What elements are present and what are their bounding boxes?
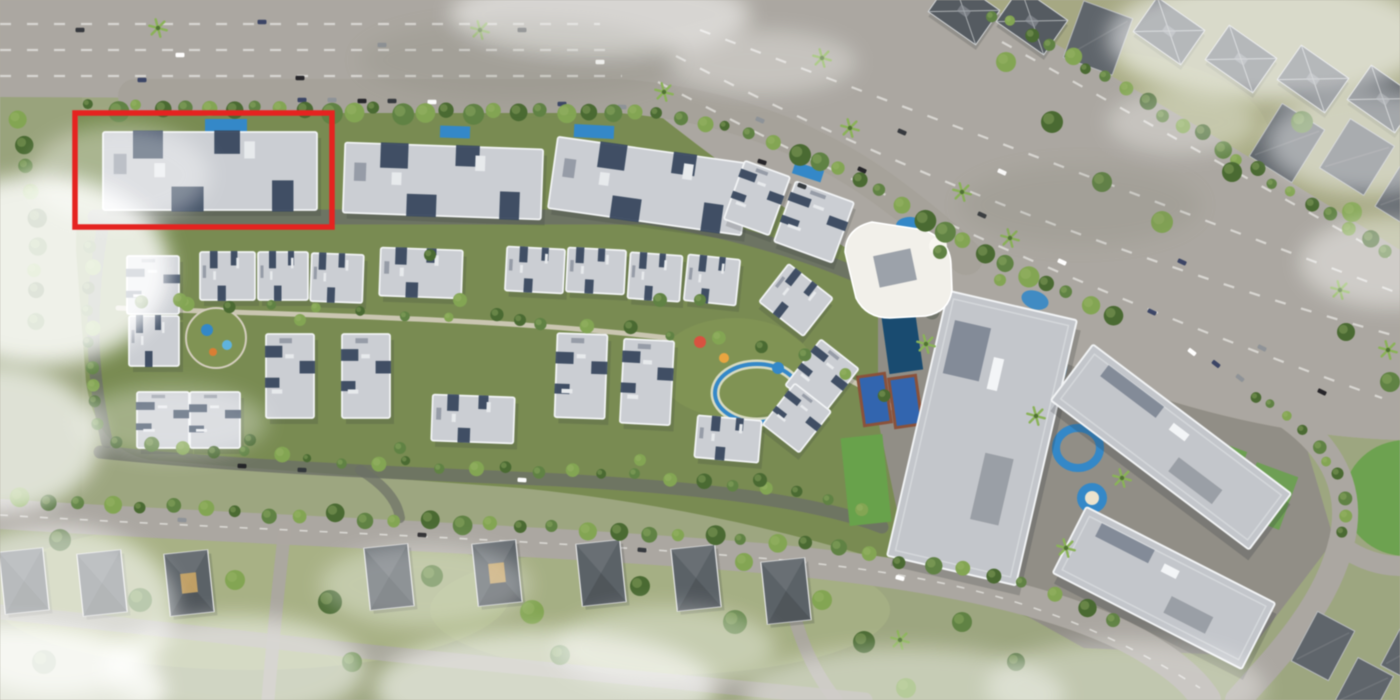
masterplan-svg [0,0,1400,700]
masterplan-aerial-view [0,0,1400,700]
